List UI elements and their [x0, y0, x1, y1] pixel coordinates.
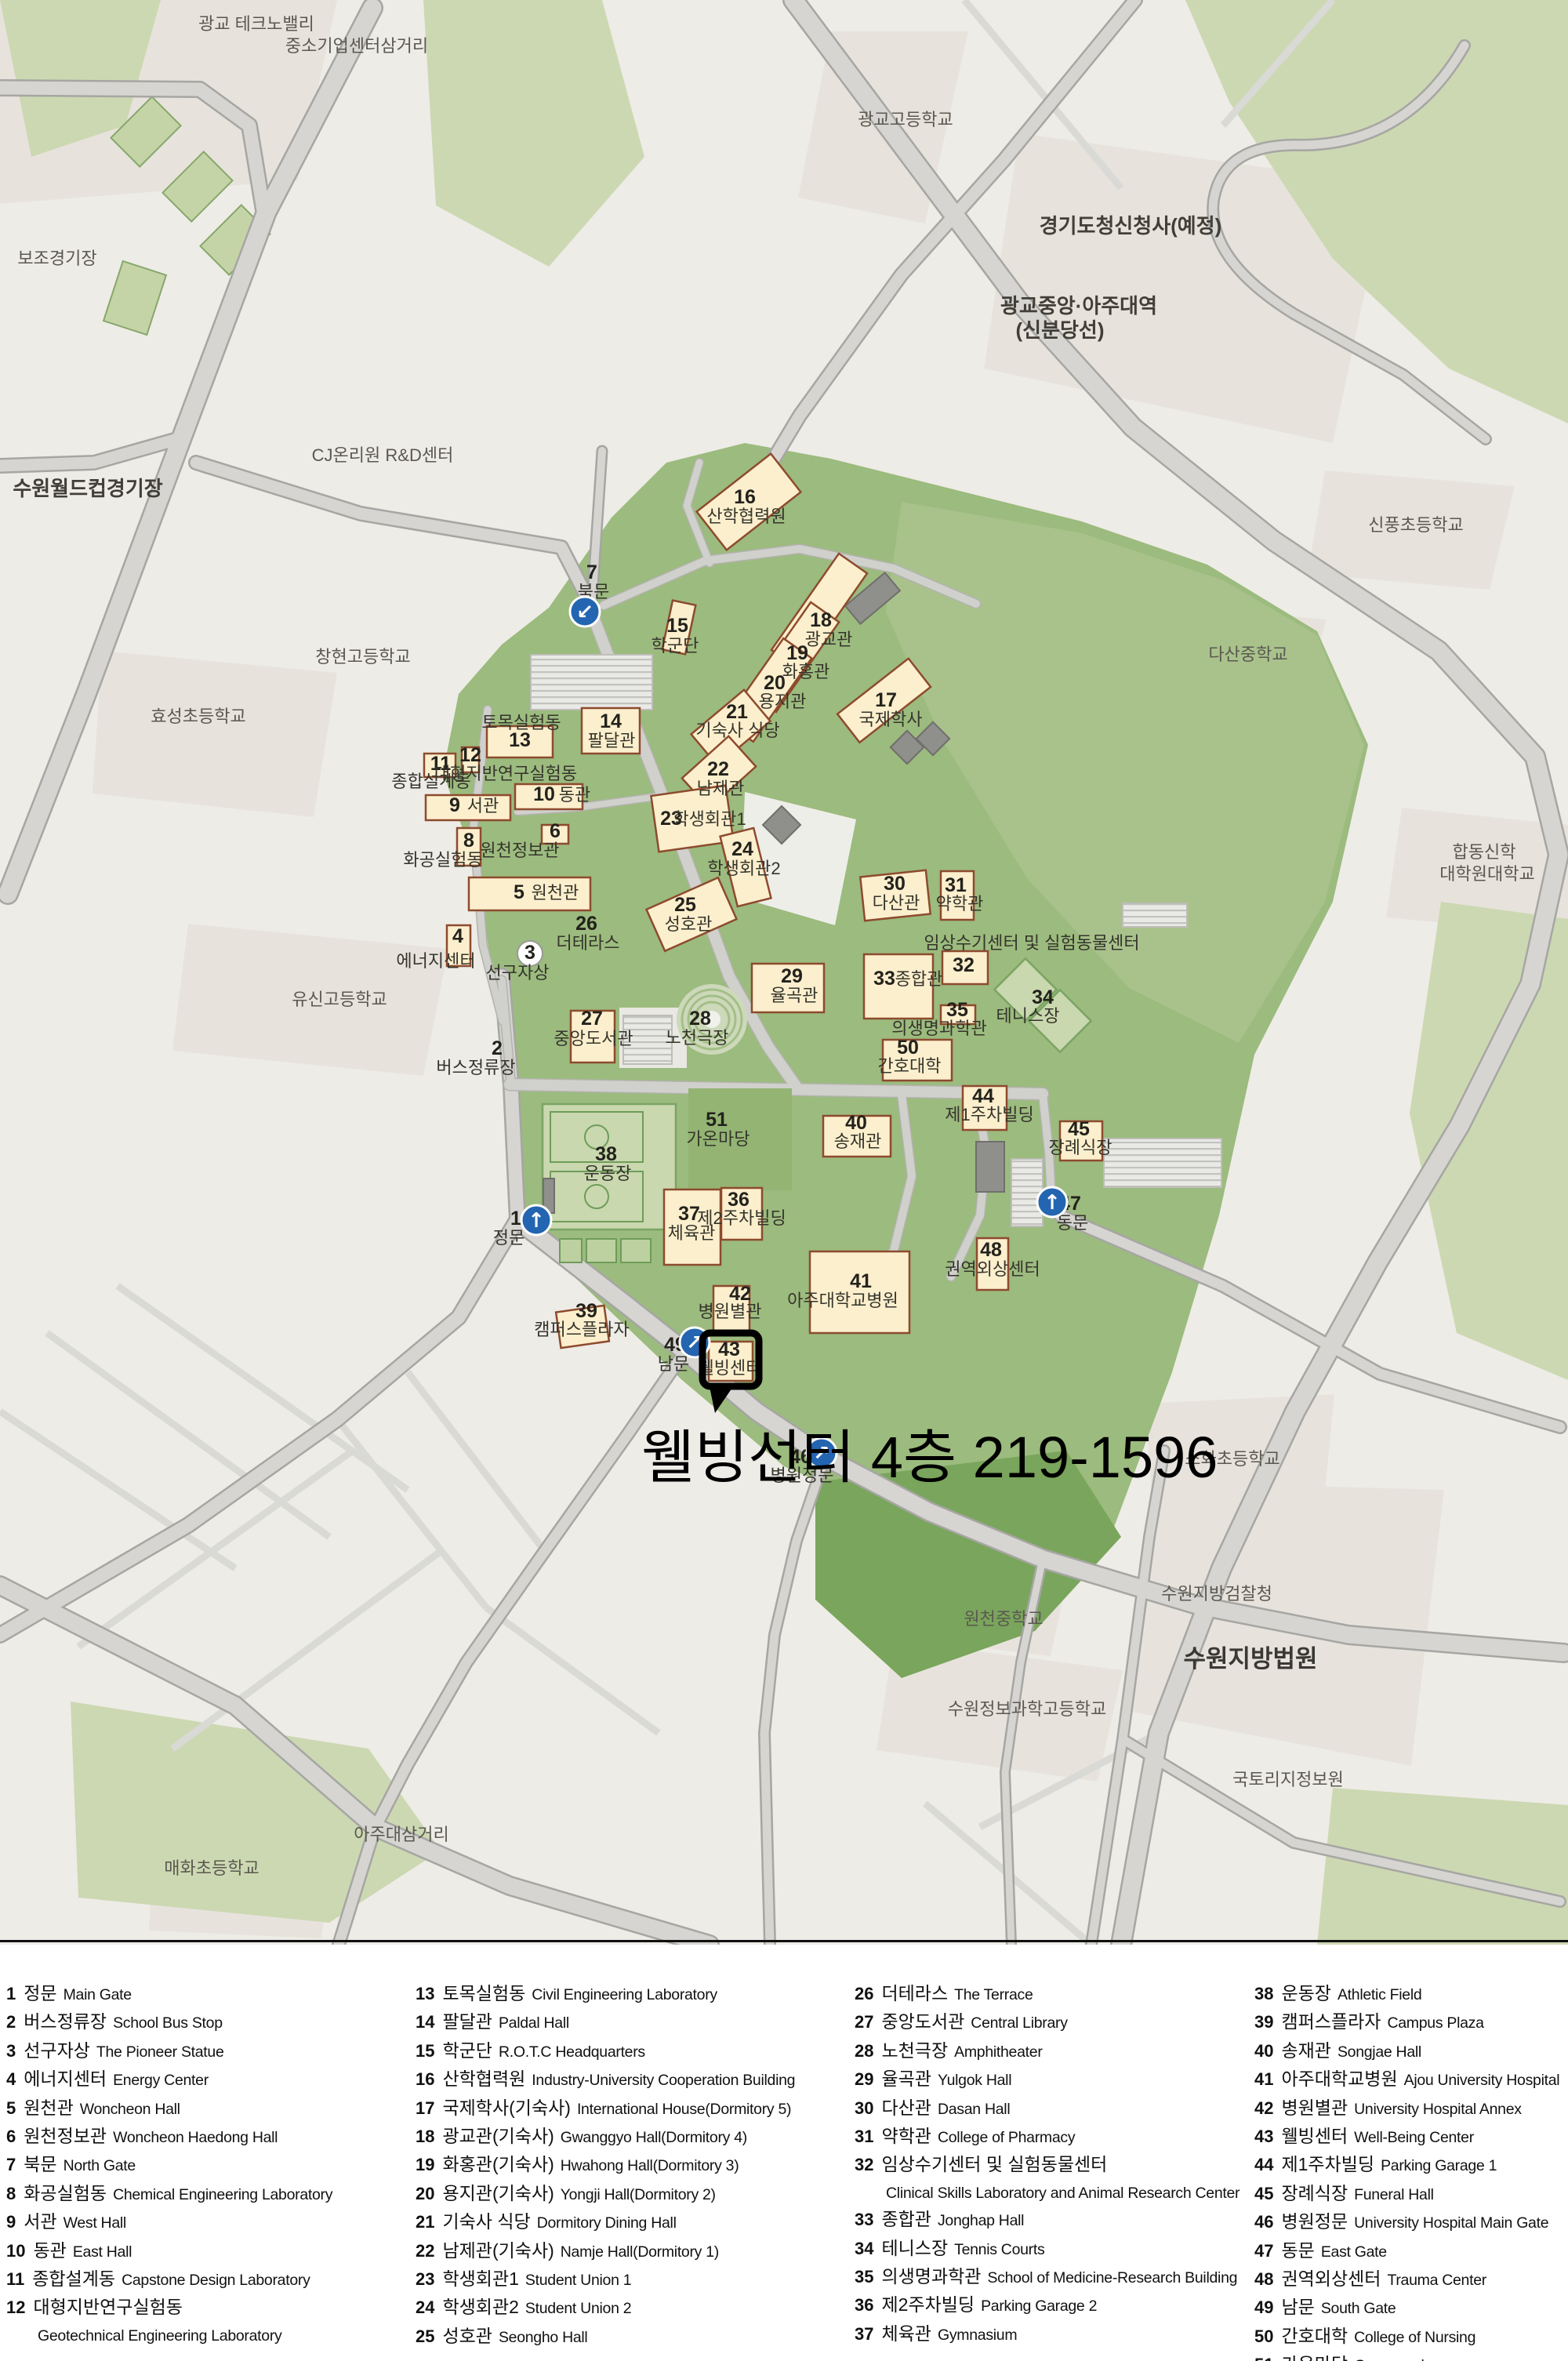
building-label-24: 학생회관2: [707, 859, 780, 878]
building-label-49: 남문: [658, 1354, 689, 1374]
legend-item-6: 6원천정보관Woncheon Haedong Hall: [6, 2123, 410, 2152]
legend-column-3: 26더테라스The Terrace27중앙도서관Central Library2…: [855, 1981, 1250, 2349]
building-label-48: 권역외상센터: [945, 1259, 1040, 1279]
building-number-39: 39: [575, 1300, 597, 1322]
legend-item-24: 24학생회관2Student Union 2: [416, 2294, 851, 2323]
building-label-44: 제1주차빌딩: [945, 1105, 1033, 1124]
legend-item-15: 15학군단R.O.T.C Headquarters: [416, 2038, 851, 2066]
building-label-8: 화공실험동: [403, 850, 482, 870]
legend-item-9: 9서관West Hall: [6, 2209, 410, 2237]
building-number-41: 41: [850, 1270, 872, 1292]
building-number-37: 37: [678, 1203, 700, 1225]
legend-item-5: 5원천관Woncheon Hall: [6, 2095, 410, 2123]
building-label-13: 토목실험동: [481, 713, 561, 732]
legend: 1정문Main Gate2버스정류장School Bus Stop3선구자상Th…: [0, 1945, 1568, 2361]
building-label-30: 다산관: [873, 893, 920, 913]
building-label-18: 광교관: [805, 630, 853, 649]
legend-item-21: 21기숙사 식당Dormitory Dining Hall: [416, 2209, 851, 2237]
building-number-31: 31: [945, 874, 967, 896]
legend-item-20: 20용지관(기숙사)Yongji Hall(Dormitory 2): [416, 2181, 851, 2209]
building-label-3: 선구자상: [486, 963, 550, 983]
legend-item-36: 36제2주차빌딩Parking Garage 2: [855, 2292, 1250, 2320]
gate-north-arrow-icon: ↙: [576, 601, 593, 624]
building-label-39: 캠퍼스플라자: [534, 1320, 629, 1339]
building-label-2: 버스정류장: [436, 1058, 515, 1077]
building-number-50: 50: [897, 1037, 919, 1059]
legend-item-47: 47동문East Gate: [1254, 2238, 1565, 2266]
building-label-9: 서관: [467, 796, 499, 815]
legend-item-28: 28노천극장Amphitheater: [855, 2038, 1250, 2066]
building-label-15: 학군단: [652, 636, 699, 656]
legend-item-17: 17국제학사(기숙사)International House(Dormitory…: [416, 2095, 851, 2123]
legend-column-2: 13토목실험동Civil Engineering Laboratory14팔달관…: [416, 1981, 851, 2352]
legend-item-32: 32임상수기센터 및 실험동물센터Clinical Skills Laborat…: [855, 2152, 1250, 2207]
area-label-18: 수원지방법원: [1183, 1645, 1317, 1673]
building-label-51: 가온마당: [687, 1129, 750, 1149]
building-label-19: 화홍관: [782, 662, 830, 681]
building-number-10: 10: [533, 783, 555, 805]
building-number-48: 48: [980, 1239, 1002, 1261]
legend-item-2: 2버스정류장School Bus Stop: [6, 2009, 410, 2037]
legend-item-48: 48권역외상센터Trauma Center: [1254, 2266, 1565, 2294]
legend-item-37: 37체육관Gymnasium: [855, 2321, 1250, 2349]
building-label-50: 간호대학: [878, 1056, 942, 1076]
legend-item-46: 46병원정문University Hospital Main Gate: [1254, 2209, 1565, 2237]
building-number-51: 51: [706, 1109, 728, 1131]
building-number-33: 33: [873, 968, 895, 990]
building-label-40: 송재관: [834, 1131, 882, 1151]
legend-item-50: 50간호대학College of Nursing: [1254, 2323, 1565, 2352]
legend-item-3: 3선구자상The Pioneer Statue: [6, 2038, 410, 2066]
building-number-35: 35: [946, 999, 968, 1021]
legend-item-12: 12대형지반연구실험동Geotechnical Engineering Labo…: [6, 2294, 410, 2349]
area-label-19: 원천중학교: [964, 1609, 1043, 1629]
legend-column-4: 38운동장Athletic Field39캠퍼스플라자Campus Plaza4…: [1254, 1981, 1565, 2361]
legend-item-29: 29율곡관Yulgok Hall: [855, 2066, 1250, 2094]
legend-item-30: 30다산관Dasan Hall: [855, 2095, 1250, 2123]
building-label-34: 테니스장: [996, 1006, 1060, 1026]
legend-item-1: 1정문Main Gate: [6, 1981, 410, 2009]
building-number-34: 34: [1032, 986, 1054, 1008]
legend-item-31: 31약학관College of Pharmacy: [855, 2123, 1250, 2152]
area-label-3: 경기도청신청사(예정): [1040, 214, 1222, 238]
building-number-28: 28: [689, 1008, 711, 1030]
legend-item-45: 45장례식장Funeral Hall: [1254, 2181, 1565, 2209]
building-number-14: 14: [600, 710, 622, 732]
legend-item-26: 26더테라스The Terrace: [855, 1981, 1250, 2009]
building-number-19: 19: [786, 642, 808, 664]
building-label-6: 원천정보관: [480, 841, 559, 860]
legend-item-19: 19화홍관(기숙사)Hwahong Hall(Dormitory 3): [416, 2152, 851, 2180]
building-number-2: 2: [492, 1037, 503, 1059]
legend-item-7: 7북문North Gate: [6, 2152, 410, 2180]
building-label-47: 동문: [1057, 1213, 1088, 1233]
legend-item-4: 4에너지센터Energy Center: [6, 2066, 410, 2094]
building-number-16: 16: [734, 486, 756, 508]
area-label-14: 합동신학: [1453, 842, 1516, 862]
building-number-27: 27: [581, 1008, 603, 1030]
building-label-16: 산학협력원: [706, 507, 786, 526]
campus-map-page: 광교 테크노밸리중소기업센터삼거리광교고등학교경기도청신청사(예정)광교중앙·아…: [0, 0, 1568, 2361]
map-canvas: 광교 테크노밸리중소기업센터삼거리광교고등학교경기도청신청사(예정)광교중앙·아…: [0, 0, 1568, 1945]
map-bottom-border: [0, 1940, 1568, 1942]
building-number-43: 43: [718, 1339, 740, 1360]
building-label-37: 체육관: [668, 1223, 716, 1243]
building-number-18: 18: [810, 609, 832, 631]
map-svg: 광교 테크노밸리중소기업센터삼거리광교고등학교경기도청신청사(예정)광교중앙·아…: [0, 0, 1568, 1945]
area-label-4: 광교중앙·아주대역: [1000, 294, 1157, 318]
building-label-22: 남제관: [697, 779, 745, 798]
building-label-33: 종합관: [895, 969, 943, 989]
building-number-21: 21: [726, 701, 748, 723]
building-number-15: 15: [666, 615, 688, 637]
legend-item-8: 8화공실험동Chemical Engineering Laboratory: [6, 2181, 410, 2209]
building-label-1: 정문: [493, 1228, 524, 1248]
building-label-25: 성호관: [665, 914, 713, 934]
building-number-24: 24: [731, 838, 753, 860]
area-label-0: 광교 테크노밸리: [198, 14, 314, 34]
legend-item-18: 18광교관(기숙사)Gwanggyo Hall(Dormitory 4): [416, 2123, 851, 2152]
area-label-1: 중소기업센터삼거리: [285, 36, 428, 56]
building-label-35: 의생명과학관: [891, 1019, 986, 1038]
building-label-20: 용지관: [759, 692, 807, 711]
legend-item-43: 43웰빙센터Well-Being Center: [1254, 2123, 1565, 2152]
legend-item-51: 51가온마당Gaon garden: [1254, 2352, 1565, 2361]
gate-main-arrow-icon: ↑: [528, 1209, 545, 1233]
building-label-26: 더테라스: [557, 933, 620, 953]
building-number-13: 13: [509, 729, 531, 751]
building-number-30: 30: [884, 873, 906, 895]
legend-item-10: 10동관East Hall: [6, 2238, 410, 2266]
legend-item-25: 25성호관Seongho Hall: [416, 2323, 851, 2352]
building-number-7: 7: [586, 561, 597, 583]
building-label-29: 율곡관: [771, 986, 818, 1005]
building-number-45: 45: [1068, 1118, 1090, 1140]
building-number-3: 3: [524, 942, 535, 964]
legend-item-44: 44제1주차빌딩Parking Garage 1: [1254, 2152, 1565, 2180]
legend-item-38: 38운동장Athletic Field: [1254, 1981, 1565, 2009]
building-label-42: 병원별관: [699, 1302, 762, 1321]
building-number-36: 36: [728, 1189, 750, 1211]
building-number-1: 1: [510, 1208, 521, 1230]
building-label-31: 약학관: [936, 894, 984, 914]
area-label-12: 다산중학교: [1208, 645, 1287, 664]
area-label-21: 국토리지정보원: [1232, 1770, 1344, 1789]
building-number-8: 8: [463, 830, 474, 852]
legend-item-16: 16산학협력원Industry-University Cooperation B…: [416, 2066, 851, 2094]
building-number-17: 17: [875, 689, 897, 711]
building-number-25: 25: [674, 894, 696, 916]
area-label-8: 수원월드컵경기장: [13, 477, 162, 500]
building-number-44: 44: [972, 1085, 994, 1107]
building-label-32: 임상수기센터 및 실험동물센터: [924, 933, 1139, 953]
legend-item-34: 34테니스장Tennis Courts: [855, 2236, 1250, 2264]
building-number-20: 20: [764, 672, 786, 694]
building-label-12: 대형지반연구실험동: [434, 764, 577, 783]
building-label-27: 중앙도서관: [554, 1029, 633, 1048]
building-label-5: 원천관: [532, 883, 579, 903]
building-label-43: 웰빙센터: [699, 1358, 762, 1378]
area-label-23: 매화초등학교: [164, 1858, 259, 1878]
building-label-38: 운동장: [584, 1164, 632, 1183]
legend-item-49: 49남문South Gate: [1254, 2294, 1565, 2323]
building-label-41: 아주대학교병원: [787, 1291, 898, 1310]
building-number-12: 12: [459, 744, 481, 766]
building-label-10: 동관: [559, 785, 590, 805]
building-number-9: 9: [449, 794, 460, 816]
building-label-17: 국제학사: [859, 710, 923, 729]
legend-item-33: 33종합관Jonghap Hall: [855, 2207, 1250, 2235]
building-number-6: 6: [550, 820, 561, 842]
building-number-22: 22: [707, 758, 729, 780]
area-label-20: 수원정보과학고등학교: [948, 1699, 1106, 1719]
area-label-5: (신분당선): [1016, 318, 1105, 342]
building-number-32: 32: [953, 954, 975, 976]
legend-item-23: 23학생회관1Student Union 1: [416, 2266, 851, 2294]
annotation-text: 웰빙선터 4층 219-1596: [641, 1425, 1218, 1490]
area-label-2: 광교고등학교: [858, 110, 953, 129]
legend-item-42: 42병원별관University Hospital Annex: [1254, 2095, 1565, 2123]
area-label-22: 아주대삼거리: [354, 1825, 448, 1844]
building-number-40: 40: [845, 1112, 867, 1134]
legend-item-41: 41아주대학교병원Ajou University Hospital: [1254, 2066, 1565, 2094]
building-number-26: 26: [575, 913, 597, 935]
legend-item-35: 35의생명과학관School of Medicine-Research Buil…: [855, 2264, 1250, 2292]
building-label-4: 에너지센터: [396, 951, 475, 971]
building-label-23: 학생회관1: [673, 809, 746, 829]
area-label-10: 효성초등학교: [151, 706, 245, 726]
legend-item-11: 11종합설계동Capstone Design Laboratory: [6, 2266, 410, 2294]
building-number-38: 38: [595, 1143, 617, 1165]
area-label-9: 창현고등학교: [315, 647, 410, 667]
building-number-29: 29: [781, 965, 803, 987]
legend-item-13: 13토목실험동Civil Engineering Laboratory: [416, 1981, 851, 2009]
legend-item-14: 14팔달관Paldal Hall: [416, 2009, 851, 2037]
area-label-13: 유신고등학교: [292, 990, 387, 1009]
building-number-5: 5: [514, 881, 524, 903]
legend-item-22: 22남제관(기숙사)Namje Hall(Dormitory 1): [416, 2238, 851, 2266]
gate-east-arrow-icon: ↑: [1044, 1191, 1061, 1215]
building-label-28: 노천극장: [666, 1028, 729, 1048]
building-label-45: 장례식장: [1049, 1138, 1112, 1157]
area-label-7: CJ온리원 R&D센터: [312, 445, 454, 465]
area-label-15: 대학원대학교: [1439, 864, 1534, 884]
area-label-17: 수원지방검찰청: [1161, 1584, 1272, 1604]
legend-item-40: 40송재관Songjae Hall: [1254, 2038, 1565, 2066]
building-label-14: 팔달관: [588, 731, 636, 750]
area-label-11: 신풍초등학교: [1368, 515, 1463, 535]
legend-column-1: 1정문Main Gate2버스정류장School Bus Stop3선구자상Th…: [6, 1981, 410, 2349]
building-number-4: 4: [452, 925, 463, 947]
area-label-6: 보조경기장: [17, 249, 96, 268]
building-label-21: 기숙사 식당: [695, 721, 779, 740]
legend-item-39: 39캠퍼스플라자Campus Plaza: [1254, 2009, 1565, 2037]
legend-item-27: 27중앙도서관Central Library: [855, 2009, 1250, 2037]
